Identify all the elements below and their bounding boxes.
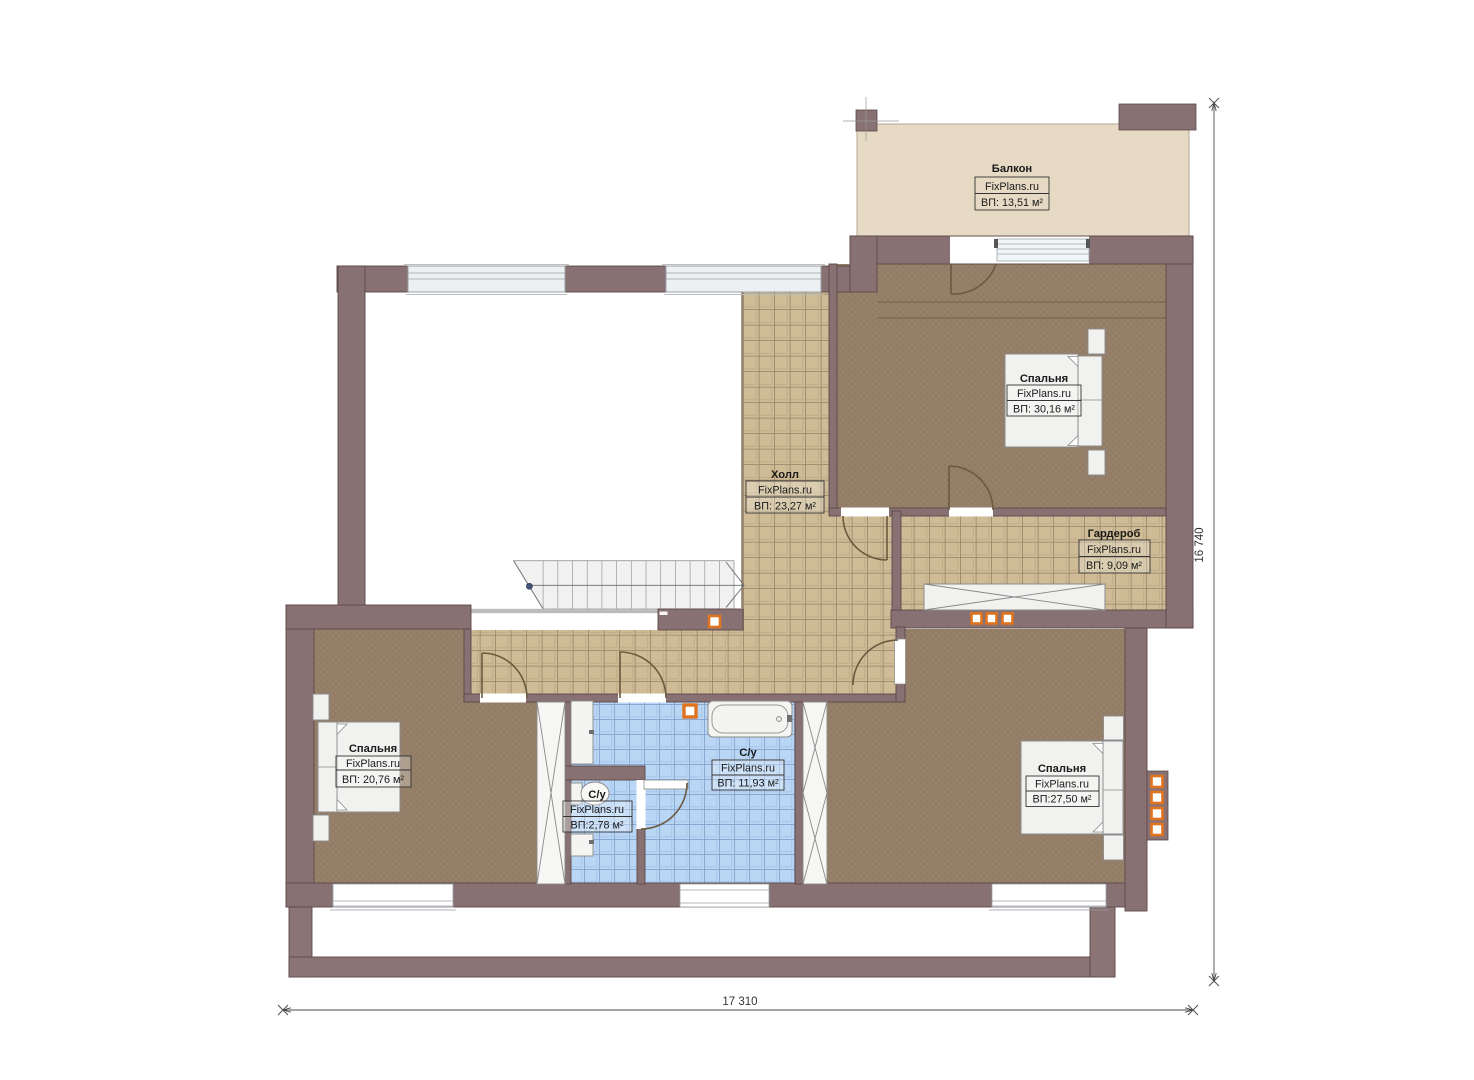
svg-text:Балкон: Балкон bbox=[992, 163, 1032, 175]
svg-text:ВП: 11,93 м²: ВП: 11,93 м² bbox=[717, 778, 779, 790]
svg-text:ВП: 13,51 м²: ВП: 13,51 м² bbox=[981, 197, 1043, 209]
svg-text:FixPlans.ru: FixPlans.ru bbox=[346, 758, 400, 770]
svg-text:ВП: 20,76 м²: ВП: 20,76 м² bbox=[342, 774, 404, 786]
svg-text:С/у: С/у bbox=[739, 747, 757, 759]
svg-text:FixPlans.ru: FixPlans.ru bbox=[570, 804, 624, 816]
svg-text:ВП: 30,16 м²: ВП: 30,16 м² bbox=[1013, 404, 1075, 416]
svg-text:FixPlans.ru: FixPlans.ru bbox=[1017, 388, 1071, 400]
svg-text:ВП: 9,09 м²: ВП: 9,09 м² bbox=[1086, 560, 1142, 572]
svg-text:FixPlans.ru: FixPlans.ru bbox=[758, 485, 812, 497]
svg-text:Холл: Холл bbox=[771, 469, 799, 481]
svg-text:FixPlans.ru: FixPlans.ru bbox=[1087, 544, 1141, 556]
svg-text:Гардероб: Гардероб bbox=[1088, 528, 1141, 540]
svg-text:FixPlans.ru: FixPlans.ru bbox=[721, 763, 775, 775]
svg-text:ВП:2,78 м²: ВП:2,78 м² bbox=[571, 820, 624, 832]
svg-text:17 310: 17 310 bbox=[722, 996, 757, 1008]
svg-text:ВП:27,50 м²: ВП:27,50 м² bbox=[1033, 794, 1092, 806]
svg-text:С/у: С/у bbox=[588, 789, 606, 801]
svg-text:Спальня: Спальня bbox=[1020, 373, 1068, 385]
svg-text:FixPlans.ru: FixPlans.ru bbox=[1035, 779, 1089, 791]
svg-text:16 740: 16 740 bbox=[1194, 527, 1206, 562]
svg-text:FixPlans.ru: FixPlans.ru bbox=[985, 181, 1039, 193]
svg-text:Спальня: Спальня bbox=[1038, 763, 1086, 775]
svg-text:ВП: 23,27 м²: ВП: 23,27 м² bbox=[754, 501, 816, 513]
svg-text:Спальня: Спальня bbox=[349, 743, 397, 755]
